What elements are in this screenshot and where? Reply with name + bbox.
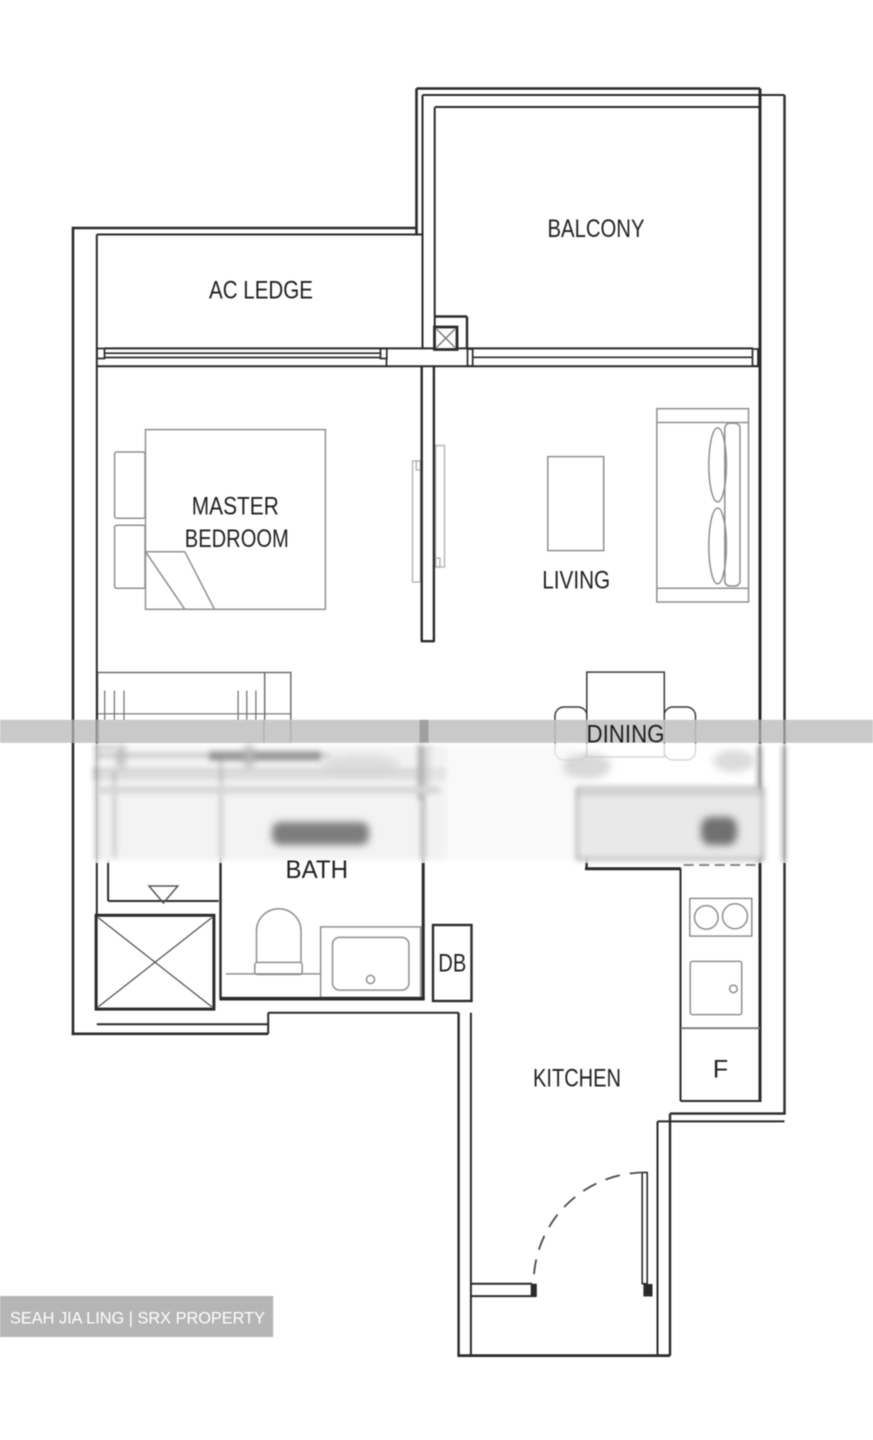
svg-text:BALCONY: BALCONY <box>548 215 645 243</box>
svg-text:F: F <box>713 1056 728 1084</box>
svg-text:BATH: BATH <box>286 856 349 884</box>
svg-text:LIVING: LIVING <box>542 567 610 595</box>
svg-text:DB: DB <box>438 950 466 978</box>
svg-text:BEDROOM: BEDROOM <box>185 525 289 553</box>
svg-text:AC LEDGE: AC LEDGE <box>209 277 313 305</box>
svg-text:SEAH JIA LING | SRX PROPERTY: SEAH JIA LING | SRX PROPERTY <box>10 1309 265 1328</box>
svg-text:MASTER: MASTER <box>192 493 279 521</box>
svg-text:KITCHEN: KITCHEN <box>533 1065 621 1093</box>
